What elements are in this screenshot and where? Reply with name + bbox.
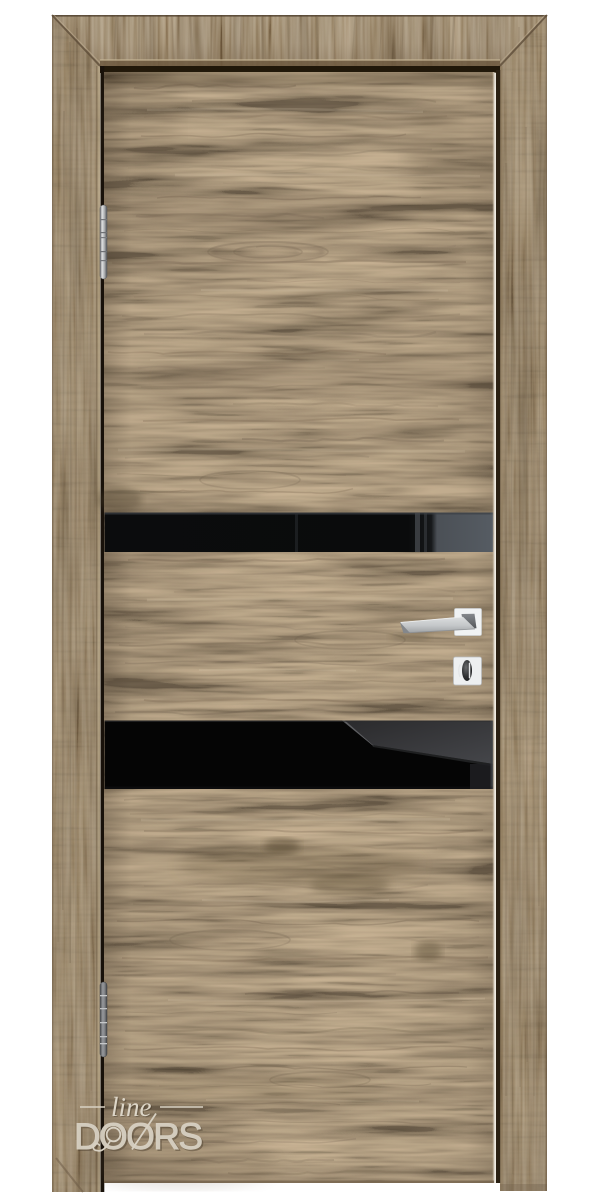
- svg-text:DOORS: DOORS: [74, 1116, 203, 1157]
